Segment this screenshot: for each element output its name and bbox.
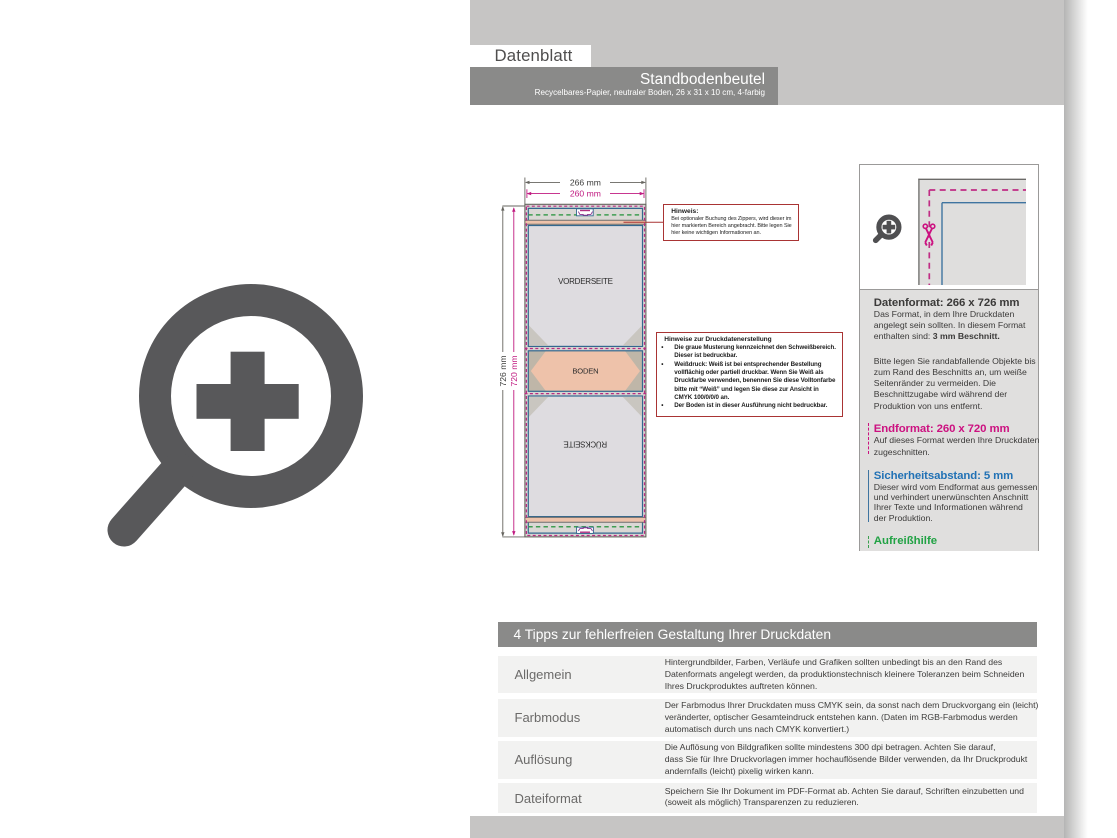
svg-text:BODEN: BODEN xyxy=(572,367,598,376)
svg-text:RÜCKSEITE: RÜCKSEITE xyxy=(564,440,608,449)
svg-text:VORDERSEITE: VORDERSEITE xyxy=(558,277,613,286)
svg-text:720 mm: 720 mm xyxy=(509,355,519,386)
svg-text:726 mm: 726 mm xyxy=(498,355,508,386)
svg-text:260 mm: 260 mm xyxy=(570,189,601,199)
svg-text:266 mm: 266 mm xyxy=(570,177,601,187)
